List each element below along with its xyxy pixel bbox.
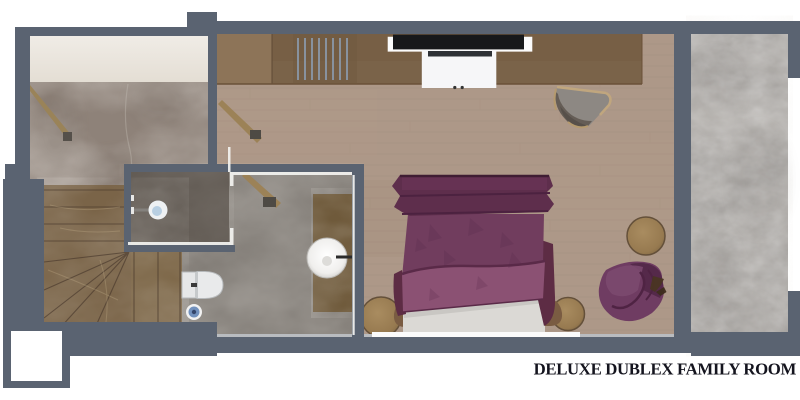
svg-text:DELUXE DUBLEX FAMILY ROOM: DELUXE DUBLEX FAMILY ROOM: [534, 360, 797, 379]
